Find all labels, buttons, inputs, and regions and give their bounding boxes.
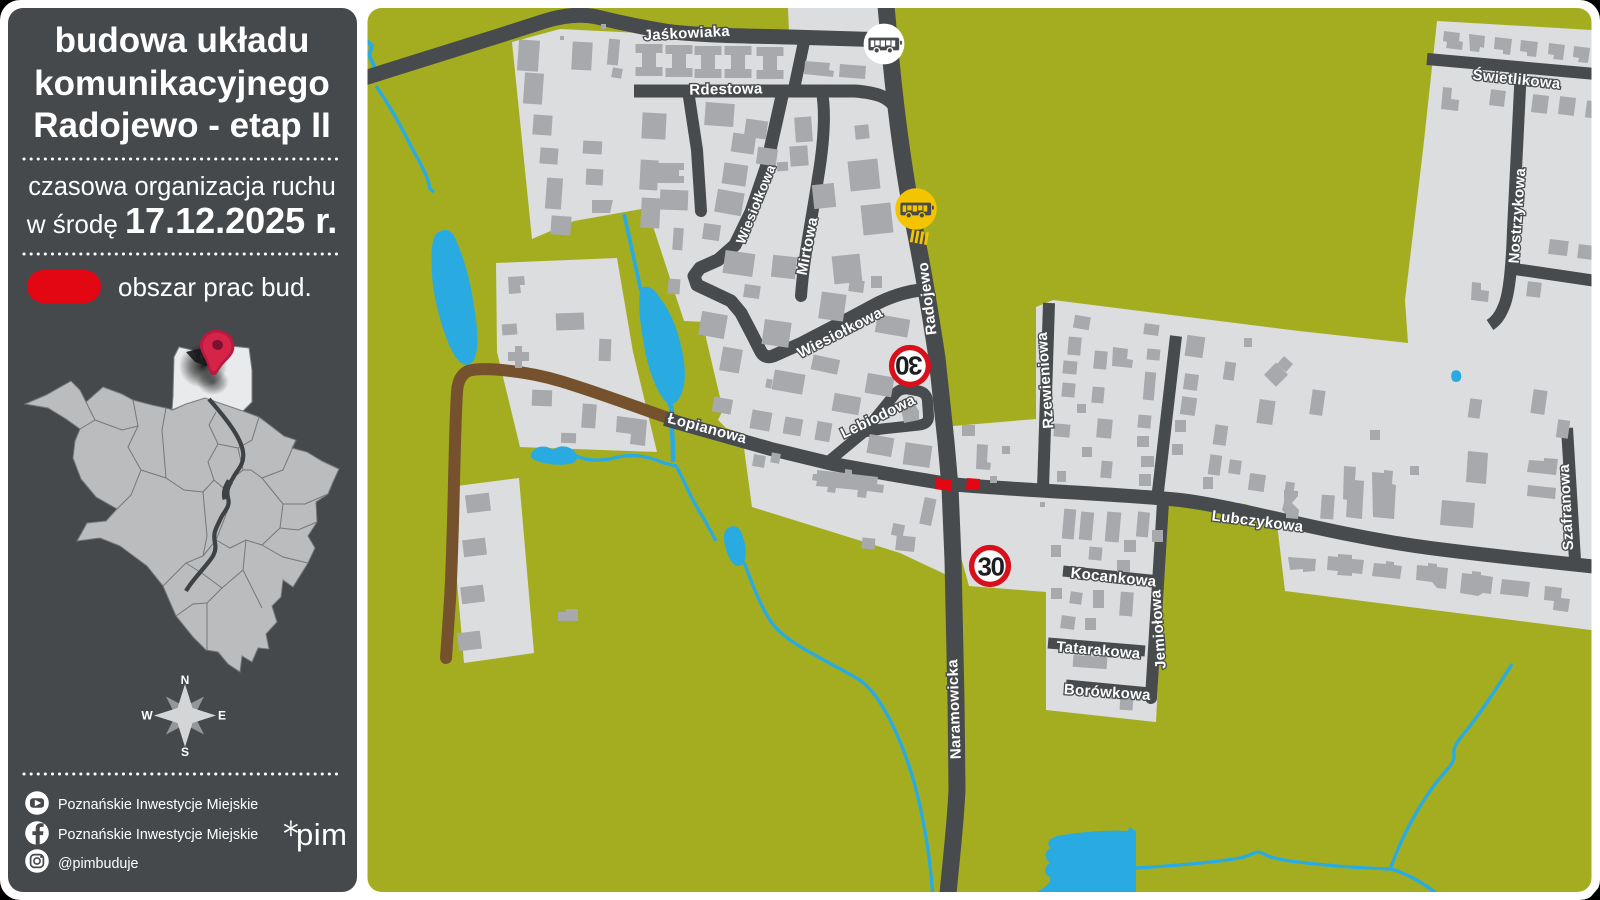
svg-text:Naramowicka: Naramowicka — [944, 659, 964, 760]
svg-text:Radojewo - etap II: Radojewo - etap II — [33, 106, 331, 145]
svg-text:Poznańskie Inwestycje Miejskie: Poznańskie Inwestycje Miejskie — [58, 827, 258, 843]
svg-text:czasowa organizacja ruchu: czasowa organizacja ruchu — [28, 173, 336, 201]
svg-text:@pimbuduje: @pimbuduje — [58, 856, 139, 872]
svg-text:N: N — [181, 673, 190, 687]
svg-text:E: E — [218, 709, 226, 723]
svg-text:W: W — [141, 709, 153, 723]
svg-text:S: S — [181, 745, 189, 759]
svg-text:budowa układu: budowa układu — [55, 21, 310, 60]
svg-text:Poznańskie Inwestycje Miejskie: Poznańskie Inwestycje Miejskie — [58, 797, 258, 813]
svg-text:Rdestowa: Rdestowa — [689, 80, 763, 98]
svg-text:obszar prac bud.: obszar prac bud. — [118, 272, 312, 302]
svg-text:pim: pim — [296, 817, 347, 852]
svg-text:komunikacyjnego: komunikacyjnego — [34, 64, 330, 103]
